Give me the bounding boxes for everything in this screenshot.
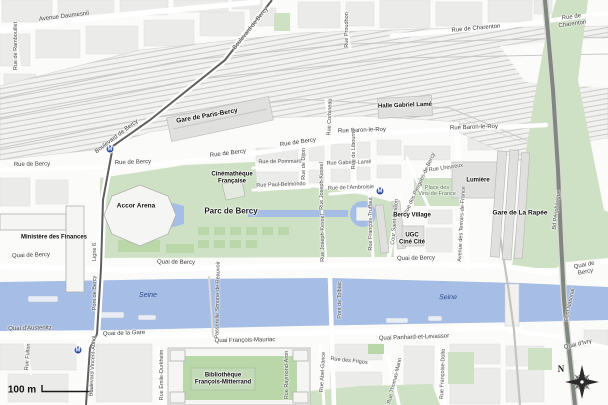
ugc-cine-cite-building <box>402 226 424 246</box>
bnf-building <box>168 348 310 405</box>
halle-gabriel-lame-building <box>378 96 433 119</box>
map: 100 m N Avenue DaumesnilRue de Rambouill… <box>0 0 608 405</box>
map-canvas <box>0 0 608 405</box>
lumiere-building <box>452 162 500 198</box>
